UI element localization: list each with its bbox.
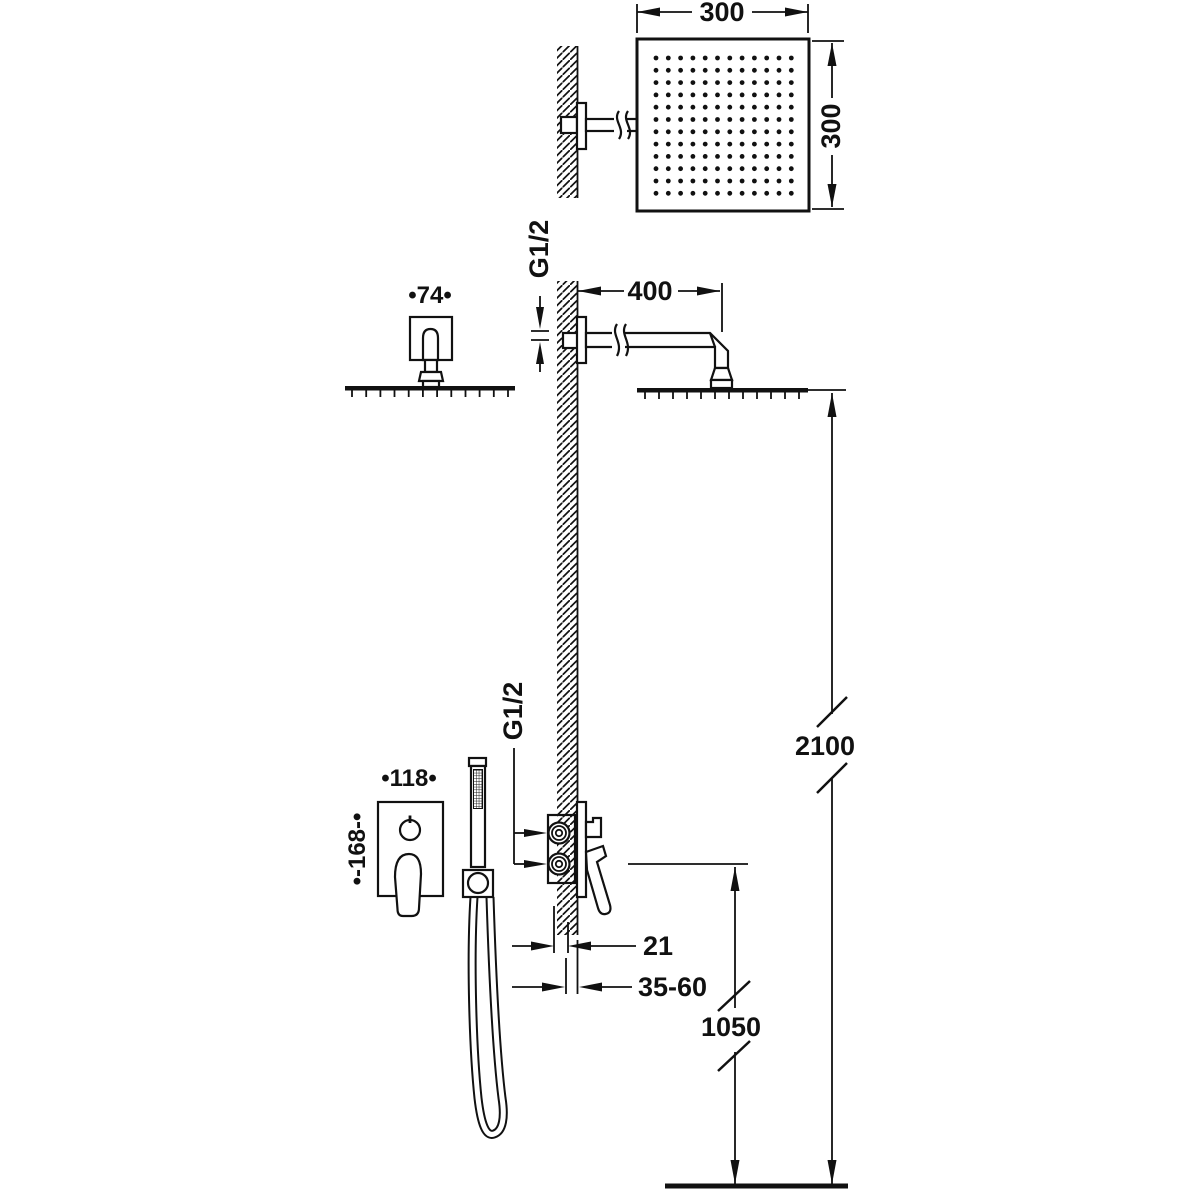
spray-nozzle-dot: [678, 154, 683, 159]
spray-nozzle-dot: [752, 154, 757, 159]
spray-nozzle-dot: [666, 154, 671, 159]
spray-nozzle-dot: [666, 191, 671, 196]
spray-nozzle-dot: [752, 117, 757, 122]
spray-nozzle-dot: [752, 56, 757, 61]
spray-nozzle-dot: [777, 93, 782, 98]
spray-nozzle-dot: [764, 129, 769, 134]
spray-nozzle-dot: [777, 191, 782, 196]
spray-nozzle-dot: [727, 105, 732, 110]
spray-nozzle-dot: [777, 166, 782, 171]
spray-nozzle-dot: [764, 56, 769, 61]
spray-nozzle-dot: [740, 166, 745, 171]
spray-nozzle-dot: [666, 166, 671, 171]
head-connector-flare: [419, 372, 443, 381]
spray-nozzle-dot: [678, 117, 683, 122]
spray-nozzle-dot: [752, 191, 757, 196]
shower-arm: [586, 333, 728, 368]
spray-nozzle-dot: [740, 154, 745, 159]
nozzle-ticks: [352, 391, 508, 398]
spray-nozzle-dot: [703, 129, 708, 134]
spray-nozzle-dot: [752, 166, 757, 171]
spray-nozzle-dot: [678, 129, 683, 134]
spray-nozzle-dot: [777, 68, 782, 73]
dim-label-escutcheon: •74•: [408, 282, 452, 309]
pipe-stub: [561, 117, 577, 133]
spray-nozzle-dot: [715, 129, 720, 134]
spray-nozzle-dot: [666, 56, 671, 61]
spray-nozzle-dot: [777, 129, 782, 134]
spray-nozzle-dot: [703, 142, 708, 147]
mixer-lever-front: [395, 854, 421, 916]
spray-nozzle-dot: [678, 105, 683, 110]
spray-nozzle-dot: [654, 129, 659, 134]
spray-nozzle-dot: [715, 80, 720, 85]
shower-installation-diagram: 300 300 •74• G1/2: [0, 0, 1200, 1200]
spray-nozzle-dot: [715, 93, 720, 98]
spray-nozzle-dot: [678, 191, 683, 196]
dim-label-head-width: 300: [699, 0, 744, 27]
spray-nozzle-dot: [678, 142, 683, 147]
spray-nozzle-dot: [703, 80, 708, 85]
dim-label-arm-length: 400: [627, 276, 672, 306]
nozzle-ticks: [645, 393, 799, 400]
dim-break-slash: [718, 981, 750, 1011]
dim-mixer-height-from-floor: 1050: [628, 864, 764, 1184]
spray-nozzle-dot: [715, 191, 720, 196]
spray-nozzle-dot: [666, 68, 671, 73]
spray-nozzle-dot: [691, 117, 696, 122]
spray-nozzle-dot: [654, 179, 659, 184]
dim-embed-depth-range: 35-60: [512, 940, 707, 1002]
spray-nozzle-dot: [777, 105, 782, 110]
spray-nozzle-dot: [703, 105, 708, 110]
spray-nozzle-dot: [715, 154, 720, 159]
spray-nozzle-dot: [727, 166, 732, 171]
spray-nozzle-dot: [691, 129, 696, 134]
spray-nozzle-dot: [789, 191, 794, 196]
dim-head-width: 300: [637, 0, 808, 33]
holder-knuckle: [468, 873, 488, 893]
head-plate-front: [637, 39, 809, 211]
spray-nozzle-dot: [777, 142, 782, 147]
spray-nozzle-dot: [691, 105, 696, 110]
spray-nozzle-dot: [691, 166, 696, 171]
spray-nozzle-dot: [789, 68, 794, 73]
spray-nozzle-dot: [678, 80, 683, 85]
spray-nozzle-dot: [654, 56, 659, 61]
dim-head-height: 300: [812, 41, 846, 209]
spray-nozzle-dot: [727, 56, 732, 61]
spray-nozzle-dot: [789, 93, 794, 98]
spray-nozzle-dot: [764, 93, 769, 98]
spray-nozzle-dot: [691, 56, 696, 61]
dim-label-head-height: 300: [816, 103, 846, 148]
spray-nozzle-dot: [740, 142, 745, 147]
spray-nozzle-dot: [752, 142, 757, 147]
wall-flange: [577, 317, 586, 363]
spray-nozzle-dot: [764, 68, 769, 73]
spray-nozzle-dot: [678, 56, 683, 61]
spray-nozzle-dot: [740, 68, 745, 73]
spray-nozzle-dot: [691, 80, 696, 85]
spray-nozzle-dot: [740, 117, 745, 122]
diverter-knob-side: [586, 818, 601, 837]
dim-mixer-thread: G1/2: [498, 682, 547, 868]
handshower-cap: [469, 758, 486, 766]
spray-nozzle-dot: [666, 117, 671, 122]
spray-nozzle-dot: [703, 166, 708, 171]
dim-break-slash: [718, 1041, 750, 1071]
head-side-view: [637, 388, 808, 399]
spray-nozzle-dot: [703, 56, 708, 61]
dim-label-mixer-width: •118•: [381, 765, 437, 792]
spray-nozzle-dot: [727, 191, 732, 196]
dim-label-valve-protrusion: 21: [643, 931, 673, 961]
spray-nozzle-dot: [678, 93, 683, 98]
dim-arm-thread-top: G1/2: [524, 220, 554, 372]
hand-shower: [463, 758, 503, 1134]
spray-nozzle-dot: [727, 93, 732, 98]
dim-label-arm-thread: G1/2: [524, 220, 554, 279]
spray-nozzle-dot: [691, 179, 696, 184]
spray-nozzle-dot: [789, 142, 794, 147]
spray-nozzle-dot: [740, 105, 745, 110]
spray-nozzle-dot: [752, 93, 757, 98]
spray-nozzle-dot: [727, 117, 732, 122]
spray-nozzle-dot: [703, 154, 708, 159]
dim-label-embed-range: 35-60: [638, 972, 707, 1002]
dim-label-mixer-height-floor: 1050: [701, 1012, 761, 1042]
spray-nozzle-dot: [678, 179, 683, 184]
spray-nozzle-dot: [727, 129, 732, 134]
spray-nozzle-dot: [764, 154, 769, 159]
spray-nozzle-dot: [789, 166, 794, 171]
spray-nozzle-dot: [703, 93, 708, 98]
spray-nozzle-dot: [777, 80, 782, 85]
spray-nozzle-dot: [654, 191, 659, 196]
spray-nozzle-dot: [777, 56, 782, 61]
pipe-stub: [563, 333, 578, 348]
spray-nozzle-dot: [666, 80, 671, 85]
dim-label-total-height: 2100: [795, 731, 855, 761]
spray-nozzle-dot: [715, 68, 720, 73]
spray-nozzle-dot: [777, 154, 782, 159]
spray-nozzle-dot: [727, 179, 732, 184]
spray-nozzle-dot: [740, 179, 745, 184]
spray-nozzle-dot: [691, 154, 696, 159]
spray-nozzle-dot: [777, 117, 782, 122]
spray-nozzle-dot: [678, 68, 683, 73]
arm-side-view: [563, 317, 732, 388]
spray-nozzle-dot: [740, 56, 745, 61]
spray-nozzle-dot: [715, 117, 720, 122]
spray-nozzle-dot: [727, 142, 732, 147]
arm-front-view: •74•: [345, 282, 515, 397]
spray-nozzle-dot: [666, 179, 671, 184]
spray-nozzle-dot: [727, 80, 732, 85]
drawing-canvas: 300 300 •74• G1/2: [0, 0, 1200, 1200]
spray-nozzle-dot: [727, 154, 732, 159]
arm-profile: [423, 329, 438, 360]
mixer-trim-plate-side: [577, 802, 586, 897]
spray-nozzle-dot: [764, 117, 769, 122]
handshower-grip-texture: [474, 770, 483, 809]
spray-nozzle-dot: [764, 191, 769, 196]
spray-nozzle-dot: [715, 142, 720, 147]
spray-nozzle-dot: [789, 80, 794, 85]
spray-nozzle-dot: [691, 93, 696, 98]
head-connector-flare: [711, 368, 732, 380]
head-plate-edge-front: [345, 386, 515, 391]
spray-nozzle-dot: [752, 68, 757, 73]
dim-arm-length: 400: [578, 276, 722, 332]
spray-nozzle-dot: [752, 129, 757, 134]
spray-nozzle-dot: [654, 166, 659, 171]
spray-nozzle-dot: [691, 68, 696, 73]
spray-nozzle-dot: [666, 93, 671, 98]
spray-nozzle-dot: [678, 166, 683, 171]
wall-flange: [577, 103, 586, 149]
spray-nozzle-dot: [654, 142, 659, 147]
rain-head-front-view: [637, 39, 809, 211]
dim-label-mixer-height: •-168-•: [344, 813, 371, 886]
spray-nozzle-dot: [654, 93, 659, 98]
dim-label-mixer-thread: G1/2: [498, 682, 528, 741]
spray-nozzle-dot: [654, 80, 659, 85]
spray-nozzle-dot: [715, 105, 720, 110]
spray-nozzle-dot: [740, 129, 745, 134]
spray-nozzle-dot: [654, 68, 659, 73]
spray-nozzle-dot: [715, 56, 720, 61]
dim-head-height-from-floor: 2100: [793, 390, 857, 1184]
spray-nozzle-dot: [666, 129, 671, 134]
spray-nozzle-dot: [703, 117, 708, 122]
spray-nozzle-dot: [789, 56, 794, 61]
spray-nozzle-dot: [752, 105, 757, 110]
spray-nozzle-dot: [654, 105, 659, 110]
spray-nozzle-dot: [740, 80, 745, 85]
spray-nozzle-dot: [752, 179, 757, 184]
spray-nozzle-dot: [764, 105, 769, 110]
spray-nozzle-dot: [789, 179, 794, 184]
spray-nozzle-dot: [764, 80, 769, 85]
spray-nozzle-dot: [789, 117, 794, 122]
spray-nozzle-dot: [654, 117, 659, 122]
spray-nozzle-dot: [752, 80, 757, 85]
head-connector-neck: [425, 360, 437, 372]
spray-nozzle-dot: [789, 105, 794, 110]
spray-nozzle-dot: [691, 142, 696, 147]
spray-nozzle-dot: [764, 166, 769, 171]
spray-nozzle-dot: [691, 191, 696, 196]
spray-nozzle-dot: [764, 179, 769, 184]
spray-nozzle-dot: [740, 93, 745, 98]
spray-nozzle-dot: [703, 191, 708, 196]
head-connector-base: [711, 380, 732, 388]
spray-nozzle-dot: [703, 179, 708, 184]
spray-nozzle-dot: [715, 166, 720, 171]
head-plate-edge-side: [637, 388, 808, 393]
mixer-lever-side: [586, 846, 610, 914]
spray-nozzle-dot: [777, 179, 782, 184]
spray-nozzle-dot: [654, 154, 659, 159]
spray-nozzle-dot: [666, 105, 671, 110]
spray-nozzle-dot: [703, 68, 708, 73]
spray-nozzle-dot: [764, 142, 769, 147]
dim-valve-protrusion: 21: [512, 906, 673, 961]
spray-nozzle-dot: [789, 129, 794, 134]
spray-nozzle-dot: [789, 154, 794, 159]
spray-nozzle-dot: [740, 191, 745, 196]
spray-nozzle-dot: [666, 142, 671, 147]
spray-nozzle-dot: [715, 179, 720, 184]
spray-nozzle-dot: [727, 68, 732, 73]
mixer-front-view: •118• •-168-•: [344, 765, 443, 916]
